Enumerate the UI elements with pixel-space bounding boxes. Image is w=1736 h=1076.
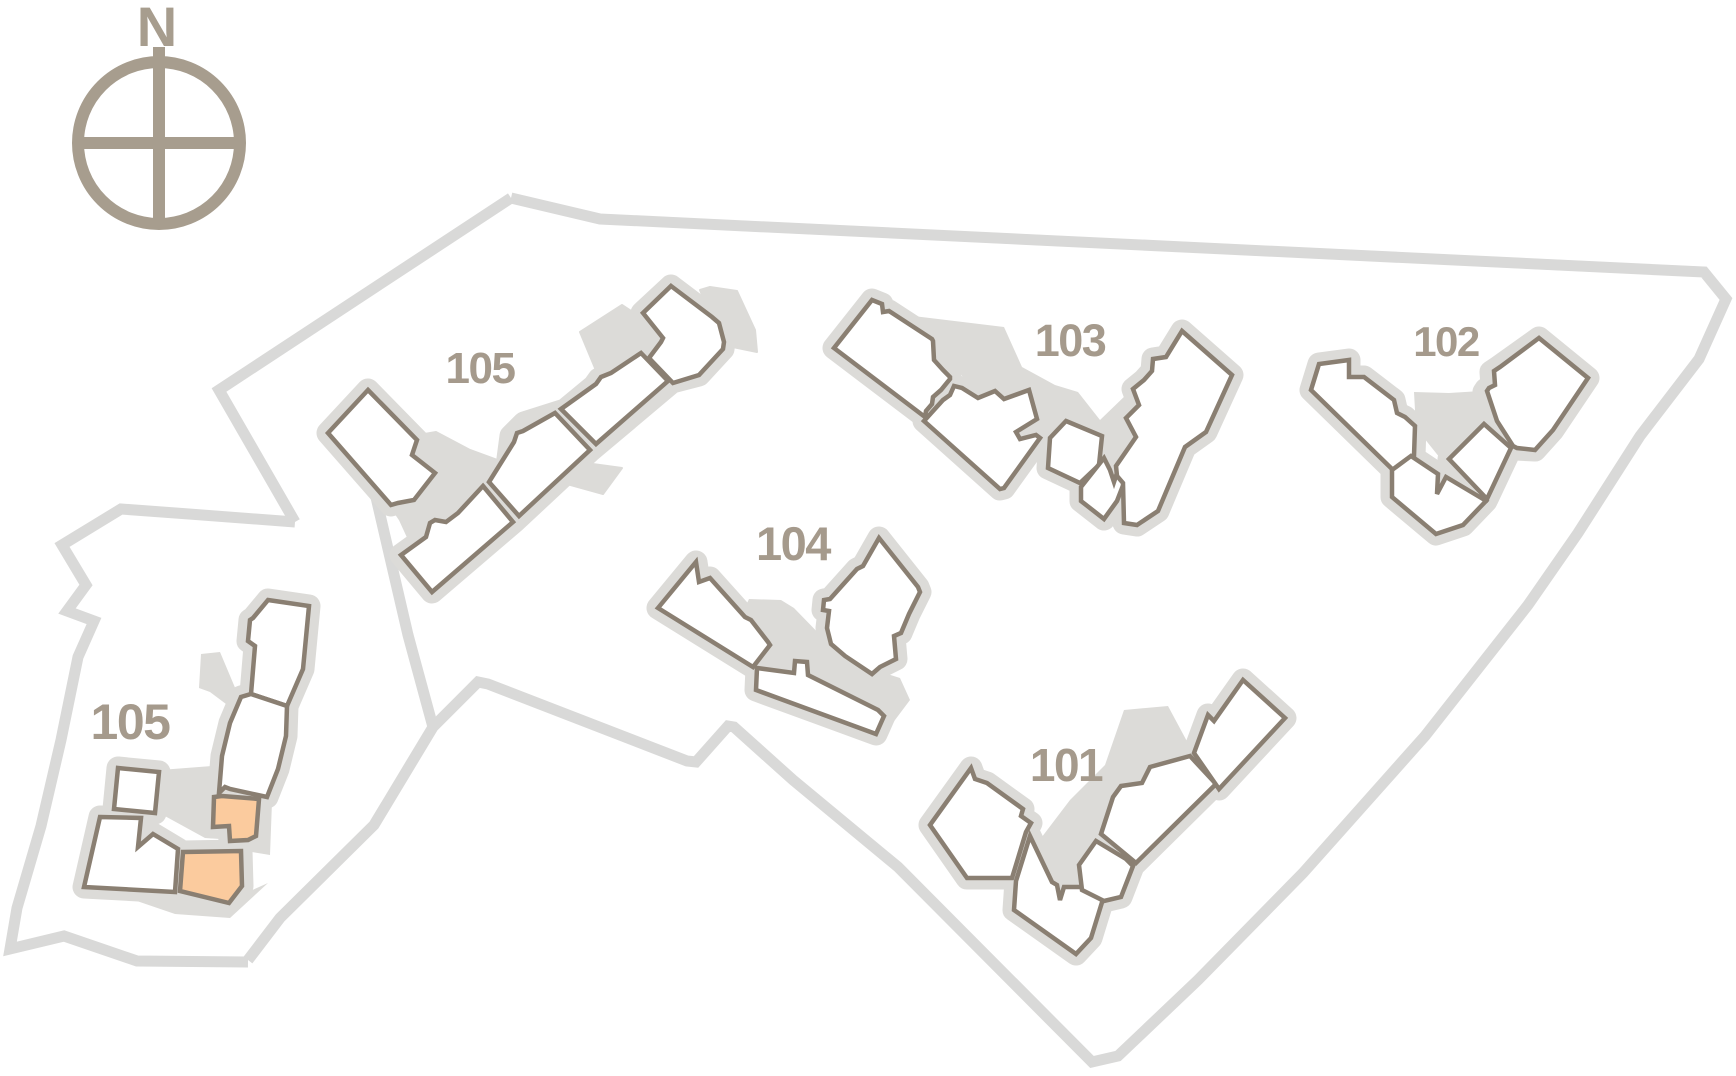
svg-text:105: 105 <box>91 694 171 750</box>
svg-text:104: 104 <box>756 517 831 570</box>
svg-text:101: 101 <box>1030 739 1103 791</box>
svg-text:105: 105 <box>446 344 516 393</box>
svg-text:N: N <box>137 0 177 58</box>
svg-text:102: 102 <box>1413 318 1479 365</box>
svg-text:103: 103 <box>1035 315 1106 366</box>
